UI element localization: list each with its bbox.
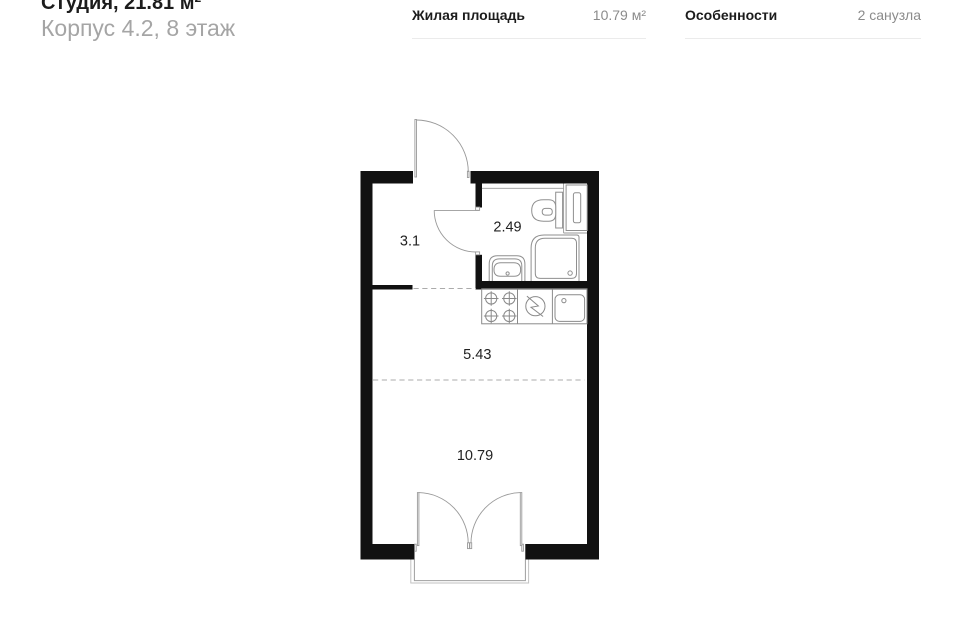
svg-text:3.1: 3.1 xyxy=(400,234,420,250)
svg-text:2.49: 2.49 xyxy=(493,220,521,236)
svg-text:5.43: 5.43 xyxy=(463,347,491,363)
svg-text:10.79: 10.79 xyxy=(457,448,493,464)
